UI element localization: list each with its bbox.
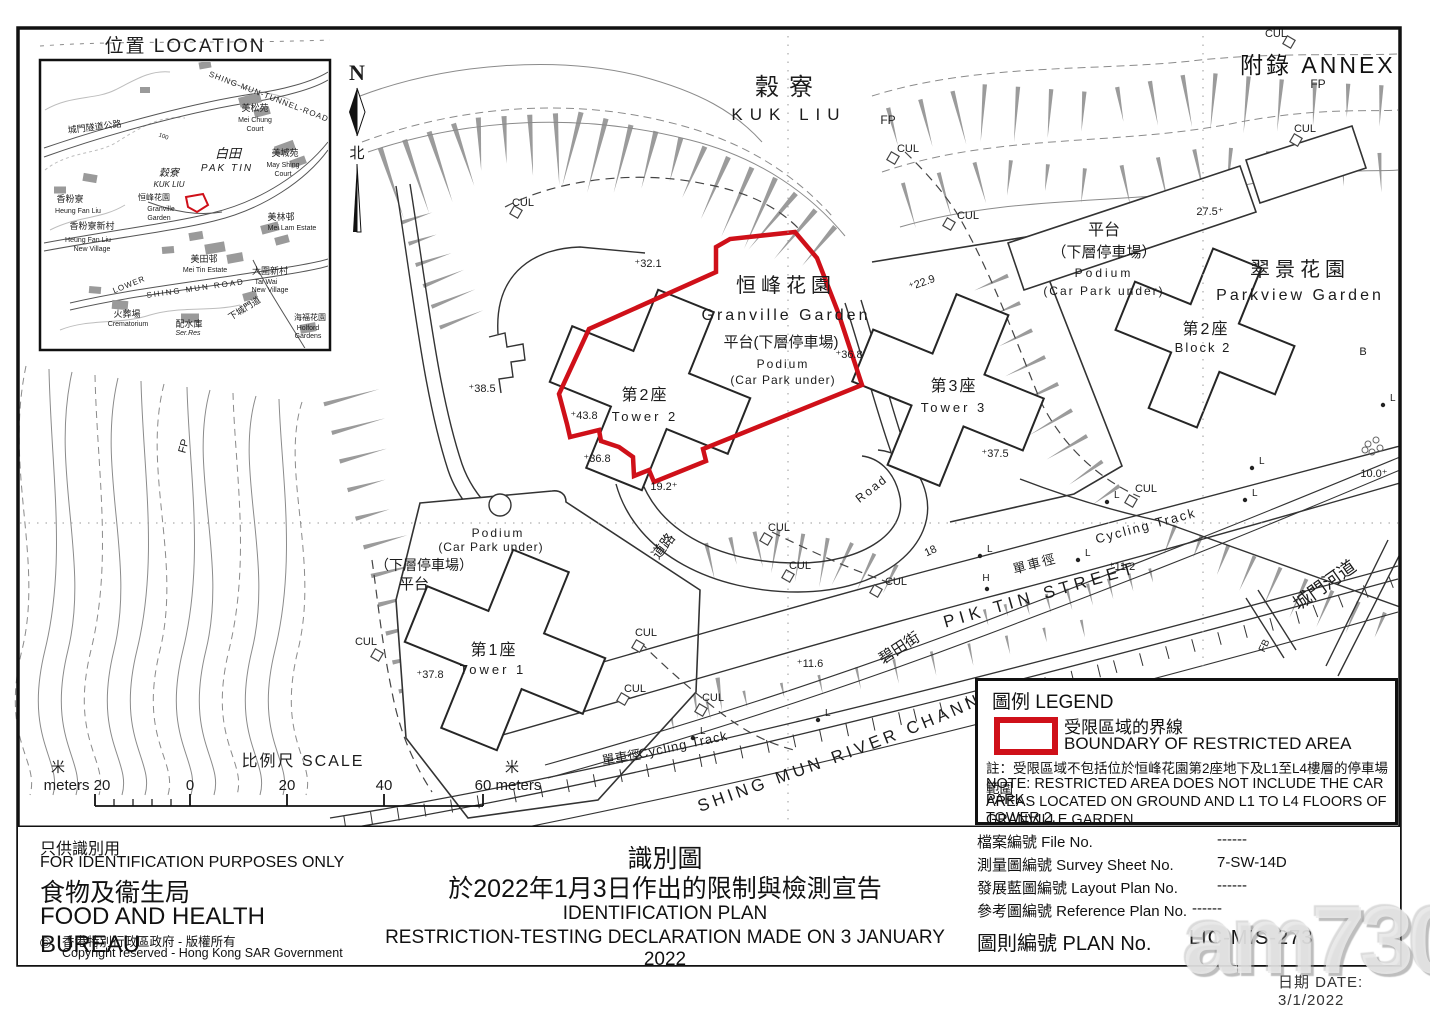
map-label: 19.2⁺ [650, 481, 677, 493]
inset-label: KUK LIU [153, 180, 184, 189]
inset-label: New Village [252, 287, 289, 294]
slope-mark [918, 99, 932, 147]
parkview-slab-2 [1246, 126, 1366, 203]
slope-mark [1244, 76, 1251, 133]
inset-label: New Village [74, 246, 111, 253]
restricted-boundary-swatch [994, 717, 1058, 755]
map-label: CUL [768, 522, 790, 534]
inset-label: Crematorium [108, 321, 149, 328]
slope-mark [1379, 85, 1383, 126]
slope-mark [901, 182, 916, 228]
slope-mark [1045, 164, 1050, 191]
identification-plan-page: LLLLLLLL 穀寮KUK LIUFPCULCULCULCULFPCUL平台（… [0, 0, 1430, 1011]
slope-mark [795, 533, 805, 582]
scale-tick-20: 20 [279, 777, 296, 794]
legend-note-en: GRANVILLE GARDEN [986, 812, 1133, 828]
inset-label: 美田邨 [190, 253, 217, 264]
map-label: FP [176, 438, 191, 455]
culvert-symbol [371, 649, 383, 661]
slope-mark [1120, 165, 1131, 207]
slope-mark [347, 480, 386, 493]
tree-symbol [1365, 441, 1371, 447]
inset-label: Gardens [295, 333, 322, 340]
contour-line [268, 399, 286, 795]
slope-mark [1005, 635, 1010, 654]
map-label: FB [1257, 638, 1273, 655]
map-label: 10.0⁺ [1360, 468, 1387, 480]
inset-label: 穀寮 [159, 167, 181, 179]
identification-note-en: FOR IDENTIFICATION PURPOSES ONLY [40, 854, 344, 872]
map-label: ⁺36.8 [835, 349, 862, 361]
inset-label: 海福花園 [294, 312, 326, 322]
inset-label: Court [246, 126, 263, 133]
culvert-symbol [1125, 495, 1137, 507]
north-arrow: N 北 [349, 60, 365, 232]
slope-mark [422, 270, 464, 288]
map-label: Cycling Track [1094, 505, 1198, 546]
slope-mark [1115, 87, 1123, 122]
copyright-en: Copyright reserved - Hong Kong SAR Gover… [62, 946, 343, 960]
contour-line [61, 372, 77, 795]
map-label: 恒峰花園 [736, 274, 836, 297]
slope-mark [1210, 73, 1217, 130]
map-label: CUL [1294, 123, 1316, 135]
annex-label: 附錄 ANNEX [1240, 46, 1396, 80]
map-label: Tower 3 [921, 400, 988, 415]
map-label: 平台 [1088, 221, 1120, 239]
channel-tick [1313, 605, 1318, 617]
slope-mark [832, 542, 854, 585]
lamp-post-dot [1381, 403, 1385, 407]
map-label: H [982, 573, 989, 584]
lamp-post-dot [1076, 558, 1080, 562]
legend-title: 圖例 LEGEND [992, 687, 1113, 714]
map-label: (Car Park under) [1043, 284, 1164, 298]
map-label: Podium [757, 357, 810, 371]
channel-tick [1114, 660, 1117, 673]
slope-mark [501, 116, 506, 164]
channel-tick [397, 808, 399, 821]
inset-label: Mei Lam Estate [268, 225, 317, 232]
slope-mark [553, 113, 559, 185]
slope-mark [670, 137, 684, 181]
slope-mark [451, 123, 474, 186]
inset-label: Heung Fan Liu [55, 208, 101, 215]
lamp-post-label: L [1390, 393, 1396, 404]
contour-line [199, 390, 215, 795]
map-label: 穀寮 [755, 74, 823, 101]
lamp-post-label: L [987, 544, 993, 555]
slope-mark [780, 683, 785, 698]
channel-tick [1296, 611, 1299, 624]
scale-title: 比例尺 SCALE [242, 752, 365, 770]
tree-symbol [1373, 437, 1379, 443]
slope-mark [855, 667, 861, 690]
channel-tick [646, 764, 648, 777]
inset-label: Garden [147, 215, 170, 222]
inset-label: 恒峰花園 [138, 192, 170, 202]
slope-mark [1007, 160, 1013, 195]
plan-number-label: 圖則編號 PLAN No. [977, 933, 1151, 955]
map-label: (Car Park under) [438, 540, 543, 554]
slope-mark [331, 418, 385, 435]
map-label: CUL [789, 560, 811, 572]
culvert-symbol [760, 533, 772, 545]
legend-item-en: BOUNDARY OF RESTRICTED AREA [1064, 734, 1351, 754]
slope-mark [1047, 434, 1088, 459]
lamp-post-dot [1243, 498, 1247, 502]
inset-label: Granville [147, 206, 175, 213]
map-label: 第1座 [471, 641, 518, 659]
north-n-label: N [349, 60, 365, 85]
reference-table-row: 檔案編號 File No.------ [977, 831, 1392, 853]
declaration-title-en: RESTRICTION-TESTING DECLARATION MADE ON … [365, 927, 965, 971]
contour-line [153, 384, 169, 795]
map-label: 道路 [648, 530, 678, 562]
scale-tick-0: 0 [186, 777, 194, 794]
inset-label: Holford [297, 325, 320, 332]
contour-line [291, 402, 307, 795]
channel-tick [846, 723, 849, 736]
slope-mark [1148, 81, 1158, 126]
map-label: Block 2 [1175, 340, 1232, 355]
map-label: Parkview Garden [1216, 287, 1384, 304]
map-label: CUL [1265, 28, 1287, 40]
north-kite-left [349, 88, 357, 136]
inset-label: Court [274, 171, 291, 178]
slope-mark [1180, 75, 1192, 127]
slope-mark [999, 328, 1033, 346]
slope-mark [967, 643, 973, 665]
inset-label: 美林邨 [267, 211, 294, 222]
contour-line [222, 393, 240, 795]
slope-mark [1346, 84, 1350, 118]
map-label: Podium [1075, 266, 1134, 280]
lamp-post-dot [1105, 500, 1109, 504]
lamp-post-dot [978, 554, 982, 558]
channel-tick [819, 729, 822, 742]
culvert-symbol [943, 218, 955, 230]
slope-mark [1345, 601, 1360, 634]
channel-tick [1338, 595, 1343, 607]
scale-meter-zh-left: 米 [51, 759, 65, 775]
contour-line [107, 378, 123, 795]
slope-mark [1277, 79, 1284, 131]
reference-row-label: 測量圖編號 Survey Sheet No. [977, 857, 1174, 874]
map-label: ⁺22.9 [907, 273, 937, 294]
inset-building-blob [140, 87, 150, 93]
slope-mark [363, 535, 407, 549]
map-label: FP [880, 113, 895, 127]
lamp-post-label: L [825, 708, 831, 719]
map-label: ⁺32.1 [634, 258, 661, 270]
map-label: 平台 [399, 576, 429, 593]
tree-symbol [1377, 445, 1383, 451]
map-label: (Car Park under) [730, 373, 835, 387]
inset-label: Mei Chung [238, 117, 272, 124]
slope-mark [1080, 620, 1085, 638]
scale-label-left: meters 20 [44, 777, 111, 794]
podium-notch [489, 494, 511, 516]
map-label: ⁺37.8 [416, 669, 443, 681]
inset-label: Ser.Res [175, 330, 201, 337]
inset-building-blob [54, 187, 66, 194]
channel-tick [1140, 653, 1143, 666]
map-label: 單車徑 [1011, 551, 1058, 577]
channel-tick [714, 751, 717, 764]
map-label: ⁺11.6 [797, 658, 823, 670]
north-needle-right [357, 164, 361, 232]
map-label: CUL [957, 210, 979, 222]
map-label: 碧田街 [876, 629, 923, 668]
contour-line [130, 381, 148, 795]
map-label: ⁺37.5 [981, 448, 1008, 460]
inset-label: 火葬場 [113, 308, 140, 319]
culvert-symbol [695, 704, 707, 716]
am730-watermark: am730 [1183, 893, 1430, 989]
channel-tick [872, 718, 875, 731]
lamp-post-label: L [1259, 456, 1265, 467]
slope-mark [817, 675, 822, 695]
reference-row-label: 參考圖編號 Reference Plan No. [977, 903, 1187, 920]
slope-mark [950, 91, 966, 145]
slope-mark [973, 162, 987, 203]
slope-mark [1005, 355, 1046, 376]
map-label: CUL [897, 143, 919, 155]
map-label: Tower 1 [460, 662, 527, 677]
inset-label: Mei Tin Estate [183, 267, 227, 274]
map-label: 翠景花園 [1250, 258, 1350, 281]
reference-row-label: 檔案編號 File No. [977, 834, 1093, 851]
inset-label: 香粉寮新村 [69, 220, 114, 231]
hydrant-dot [985, 587, 989, 591]
map-label: Tower 2 [612, 409, 679, 424]
map-label: CUL [1135, 483, 1157, 495]
slope-mark [1014, 87, 1020, 142]
slope-mark [682, 146, 707, 198]
culvert-symbol [870, 585, 882, 597]
map-label: （下層停車場） [375, 557, 473, 573]
map-label: CUL [355, 636, 377, 648]
slope-mark [892, 659, 898, 684]
scale-label-right: 60 meters [475, 777, 542, 794]
slope-mark [431, 289, 476, 308]
map-label: KUK LIU [731, 105, 846, 124]
map-label: Podium [472, 526, 525, 540]
channel-tick [1166, 646, 1169, 659]
inset-label: 美城苑 [271, 147, 298, 158]
inset-building-blob [89, 286, 102, 294]
channel-tick [1218, 632, 1221, 645]
slope-mark [1217, 545, 1230, 575]
slope-mark [1048, 89, 1054, 138]
channel-tick [699, 754, 701, 767]
contour-line [38, 369, 56, 795]
map-label: CUL [624, 683, 646, 695]
lamp-post-dot [816, 718, 820, 722]
lamp-post-label: L [1085, 548, 1091, 559]
map-label: ⁺38.5 [468, 383, 495, 395]
inset-title: 位置 LOCATION [105, 35, 266, 57]
slope-mark [339, 449, 387, 464]
channel-tick [1244, 625, 1247, 638]
location-inset-map: 位置 LOCATION [40, 35, 330, 350]
inset-label: 香粉寮 [56, 193, 83, 204]
inset-label: PAK TIN [201, 163, 253, 174]
map-label: CUL [702, 692, 724, 704]
map-label: 第2座 [1183, 320, 1230, 338]
reference-row-value: 7-SW-14D [1217, 854, 1287, 871]
map-label: ⁺11.2 [1109, 561, 1135, 573]
lamp-post-label: L [1114, 490, 1120, 501]
contour-line [360, 65, 762, 142]
slope-mark [408, 234, 437, 245]
slope-mark [355, 509, 390, 521]
slope-mark [641, 131, 658, 189]
map-label: Road [853, 472, 891, 506]
inset-label: 配水庫 [175, 318, 202, 329]
slope-mark [439, 310, 483, 329]
inset-label: 白田 [215, 146, 243, 161]
inset-label: Heung Fan Liu [65, 237, 111, 244]
slope-mark [1081, 168, 1087, 203]
riverside-path [1326, 540, 1400, 676]
inset-building-blob [162, 246, 175, 254]
lamp-post-label: L [1252, 488, 1258, 499]
scale-meter-zh-right: 米 [505, 759, 519, 775]
map-label: CUL [635, 627, 657, 639]
map-label: 第3座 [931, 377, 978, 395]
inset-label: May Shing [266, 162, 299, 169]
plan-title-en: IDENTIFICATION PLAN [365, 903, 965, 925]
north-zh-label: 北 [349, 145, 364, 162]
map-label: B [1359, 346, 1366, 358]
slope-mark [476, 117, 482, 170]
channel-tick [1270, 618, 1273, 631]
map-label: 城門河道 [1289, 556, 1359, 614]
north-needle-left [353, 164, 357, 232]
slope-mark [1239, 555, 1256, 590]
slope-mark [323, 389, 379, 406]
channel-tick [673, 759, 675, 772]
channel-tick [1192, 639, 1195, 652]
map-label: ⁺43.8 [570, 410, 597, 422]
legend-box: 圖例 LEGEND 受限區域的界線 BOUNDARY OF RESTRICTED… [975, 678, 1398, 825]
issuer-block: 只供識別用 FOR IDENTIFICATION PURPOSES ONLY 食… [18, 827, 365, 965]
channel-tick [1097, 665, 1100, 678]
scale-tick-40: 40 [376, 777, 393, 794]
channel-tick [371, 812, 373, 825]
lamp-post-dot [1250, 466, 1254, 470]
map-label: （下層停車場） [1051, 244, 1156, 261]
slope-mark [701, 156, 731, 219]
reference-row-label: 發展藍圖編號 Layout Plan No. [977, 880, 1178, 897]
slope-mark [1377, 153, 1381, 192]
map-label: Granville Garden [702, 307, 871, 324]
slope-mark [753, 531, 763, 567]
slope-mark [527, 115, 533, 176]
map-label: 第2座 [622, 386, 669, 404]
slope-mark [1042, 628, 1046, 643]
contour-line [84, 375, 102, 795]
map-label: CUL [885, 576, 907, 588]
slope-mark [981, 84, 987, 142]
inset-label: 美松苑 [241, 102, 268, 113]
reference-row-value: ------ [1217, 831, 1247, 848]
title-block: 識別圖 於2022年1月3日作出的限制與檢測宣告 IDENTIFICATION … [365, 827, 965, 965]
copyright-symbol: © [40, 935, 51, 952]
slope-mark [1148, 568, 1153, 582]
map-label: 平台(下層停車場) [724, 334, 839, 351]
map-label: ⁺36.8 [583, 453, 610, 465]
slope-mark [728, 537, 736, 565]
slope-mark [614, 124, 634, 193]
slope-mark [937, 172, 952, 217]
inset-label: 大圍新村 [252, 265, 288, 276]
slope-mark [587, 118, 608, 193]
reference-table-row: 測量圖編號 Survey Sheet No.7-SW-14D [977, 854, 1392, 876]
tree-symbol [1362, 447, 1368, 453]
map-label: CUL [512, 197, 534, 209]
podium-round-corner [498, 247, 645, 334]
slope-mark [721, 166, 754, 236]
declaration-title-zh: 於2022年1月3日作出的限制與檢測宣告 [365, 869, 965, 905]
map-label: 18 [923, 543, 939, 559]
slope-mark [402, 139, 429, 213]
scale-bar-line [95, 794, 483, 806]
slope-mark [427, 131, 453, 202]
slope-mark [1081, 91, 1086, 131]
inset-label: Tai Wai [255, 279, 278, 286]
map-label: 27.5⁺ [1196, 206, 1223, 218]
contour-line [245, 396, 261, 795]
